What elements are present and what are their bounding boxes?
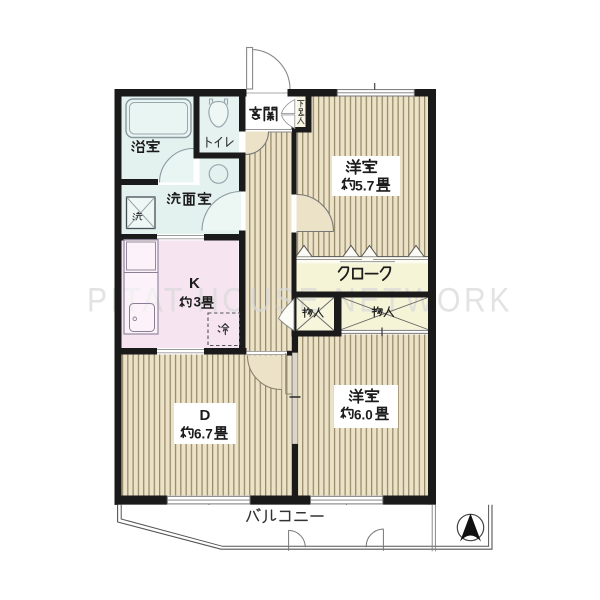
svg-text:K: K [189, 275, 200, 292]
svg-text:6.0: 6.0 [354, 408, 373, 423]
svg-text:D: D [200, 407, 211, 424]
svg-text:3: 3 [194, 295, 202, 310]
svg-text:6.7: 6.7 [194, 427, 213, 442]
svg-text:5.7: 5.7 [355, 178, 375, 194]
